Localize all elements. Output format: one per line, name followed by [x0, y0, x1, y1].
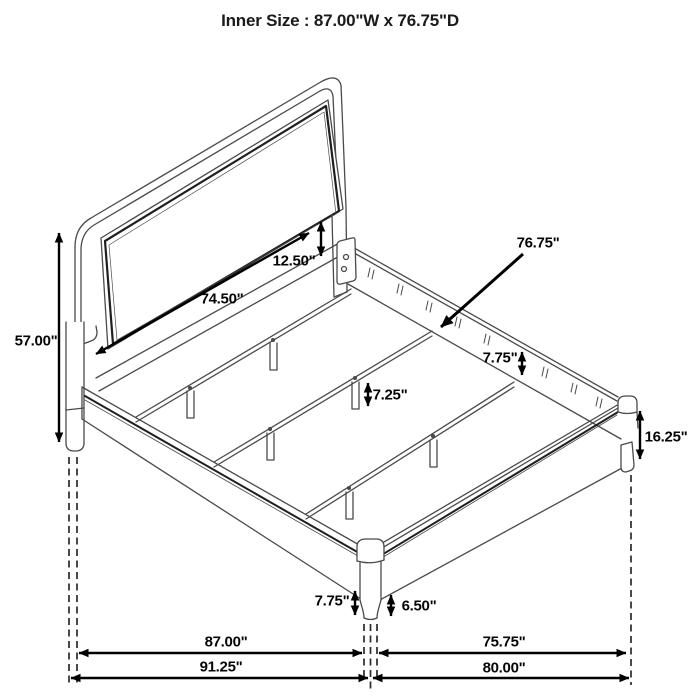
dim-arrow-76-75: [441, 254, 523, 327]
side-rail-right: [348, 249, 621, 439]
slat-leg: [430, 440, 437, 467]
bed-dimension-diagram: Inner Size : 87.00"W x 76.75"D 74.50" 12…: [0, 0, 700, 700]
dim-label-outer-width-floor: 91.25": [200, 659, 243, 676]
dim-label-footboard-rail-height: 16.25": [645, 429, 688, 446]
dim-label-front-leg-exposed: 6.50": [402, 598, 437, 615]
footboard-rail: [372, 404, 622, 601]
slat-leg: [270, 343, 277, 370]
slat-leg: [267, 433, 274, 460]
rail-bracket: [337, 238, 356, 284]
slat-leg: [346, 492, 353, 519]
dim-label-panel-to-rail: 12.50": [273, 253, 316, 270]
dim-label-inner-depth: 76.75": [517, 235, 560, 252]
dim-label-headboard-inner-width: 74.50": [201, 291, 244, 308]
dim-label-outer-depth-floor: 80.00": [483, 660, 526, 677]
slat-rails: [136, 289, 514, 519]
dim-label-headboard-height: 57.00": [15, 333, 58, 350]
right-corner-leg: [618, 396, 638, 472]
dim-label-slat-leg-height: 7.25": [373, 387, 408, 404]
extension-lines: [69, 457, 631, 692]
headboard-left-leg: [66, 322, 84, 451]
slat-leg: [187, 391, 194, 418]
slat-leg: [352, 382, 359, 409]
dim-label-inner-width-floor: 87.00": [205, 634, 248, 651]
bed-frame-drawing: [0, 0, 700, 700]
page-title: Inner Size : 87.00"W x 76.75"D: [221, 11, 459, 31]
dim-label-front-leg-height: 7.75": [315, 593, 350, 610]
dim-label-side-inner-depth-floor: 75.75": [483, 634, 526, 651]
front-leg: [357, 539, 384, 620]
side-rail-left: [82, 387, 368, 601]
dim-label-side-rail-height: 7.75": [483, 350, 518, 367]
